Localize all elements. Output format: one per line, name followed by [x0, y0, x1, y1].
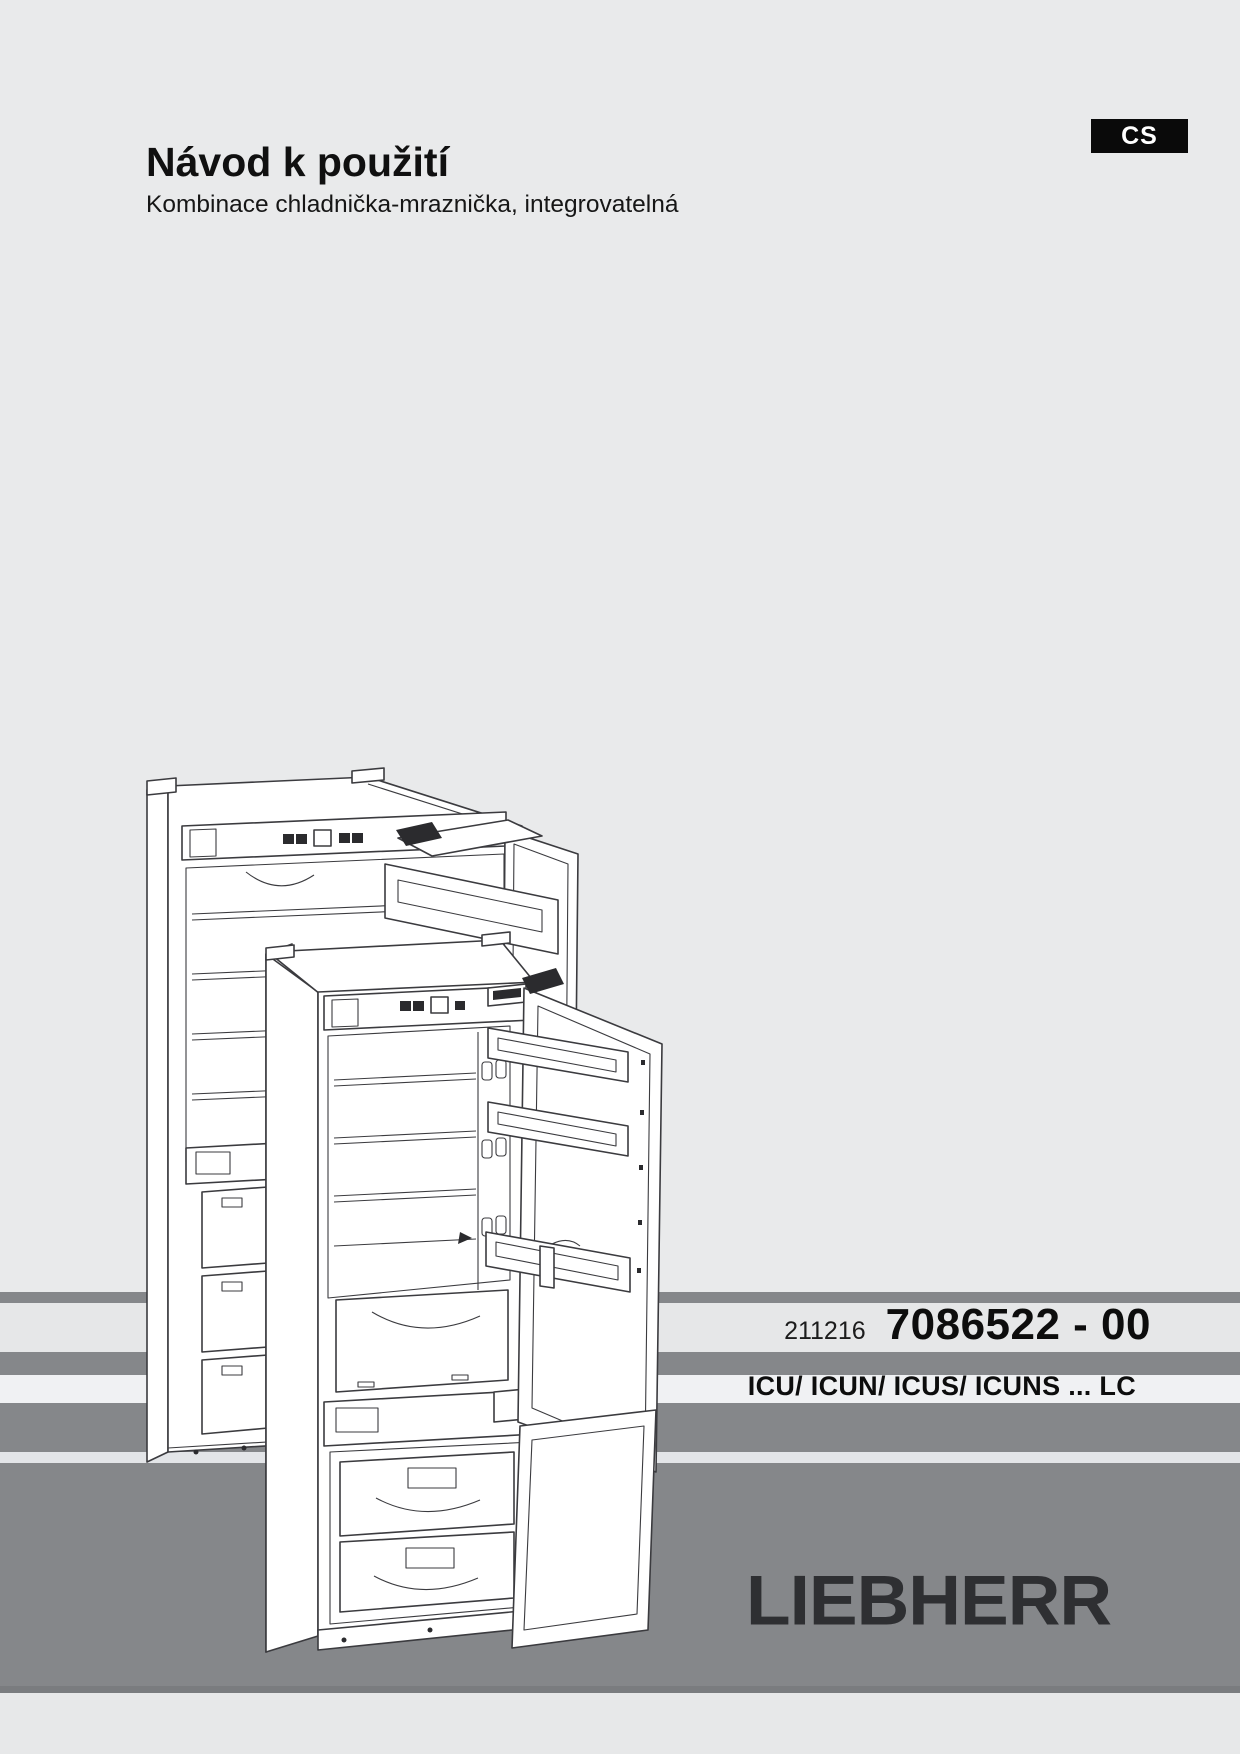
shelf-clips	[482, 1060, 506, 1236]
revision-number: 211216	[784, 1306, 866, 1356]
page-subtitle: Kombinace chladnička-mraznička, integrov…	[146, 191, 678, 219]
shelves-back	[192, 901, 498, 1100]
document-number-row: 211216 7086522 - 00	[784, 1300, 1151, 1350]
gray-stripe-lower	[0, 1403, 1240, 1452]
document-number: 7086522 - 00	[886, 1300, 1151, 1350]
page-title: Návod k použití	[146, 139, 449, 186]
bottom-margin	[0, 1693, 1240, 1754]
model-designations: ICU/ ICUN/ ICUS/ ICUNS ... LC	[748, 1371, 1136, 1402]
shelves-front	[334, 1073, 476, 1246]
manual-cover-page: Návod k použití Kombinace chladnička-mra…	[0, 0, 1240, 1754]
thin-light-stripe	[0, 1452, 1240, 1463]
language-badge: CS	[1091, 119, 1188, 153]
language-badge-label: CS	[1121, 122, 1158, 151]
liebherr-logo: LIEBHERR	[746, 1566, 1111, 1636]
